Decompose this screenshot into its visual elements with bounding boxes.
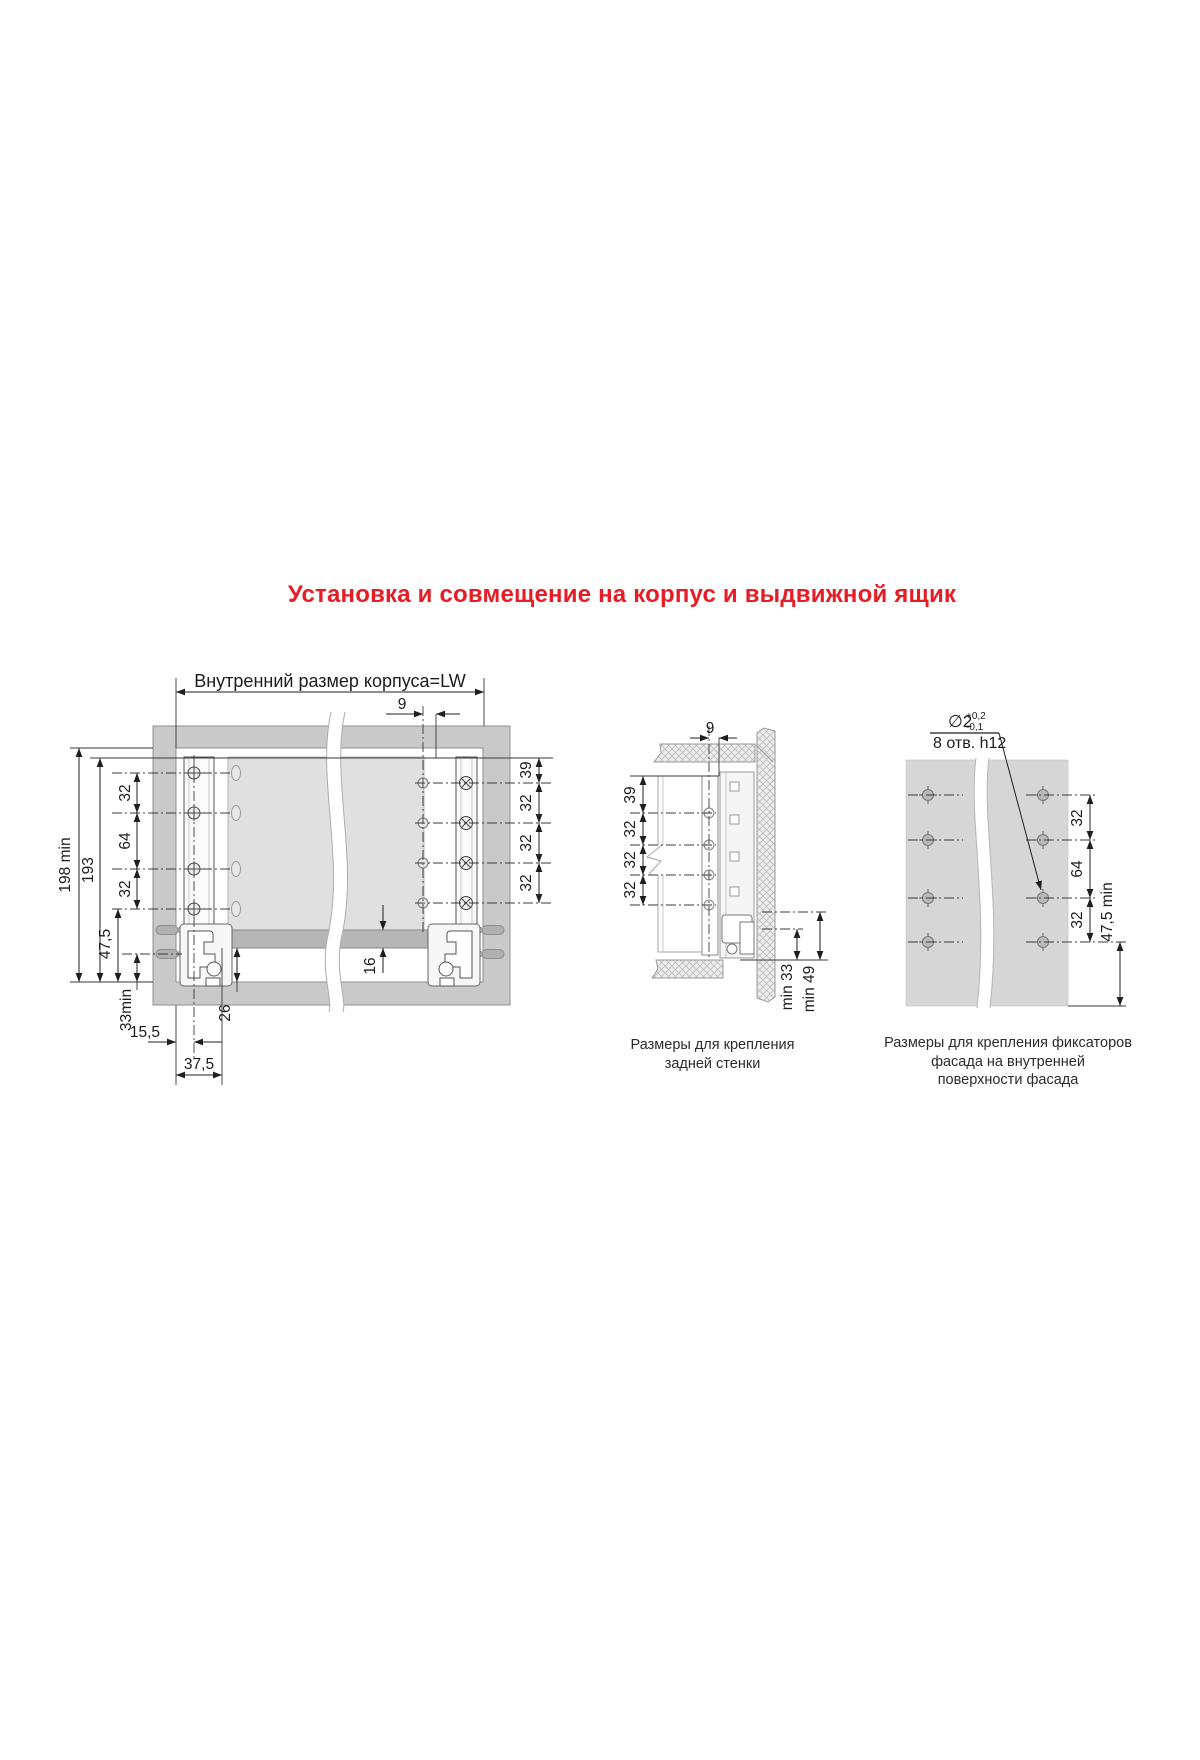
dim-label-32a: 32 — [622, 820, 639, 837]
facade-holes-diagram: ∅2 +0,2 -0,1 8 отв. h12 32 64 32 47,5 mi… — [860, 700, 1150, 1020]
dim-47-5min: 47,5 min — [1068, 882, 1126, 1006]
dim-15-5: 15,5 — [130, 1005, 222, 1085]
dim-min33: min 33 — [779, 929, 797, 1010]
dim-label-15-5: 15,5 — [130, 1024, 160, 1041]
back-bracket — [720, 772, 754, 958]
dim-pitch-chain: 32 64 32 — [1069, 795, 1090, 942]
dim-label-32b: 32 — [622, 851, 639, 868]
cabinet-top-panel — [654, 744, 755, 762]
dim-pitch-chain: 39 32 32 32 — [622, 776, 643, 905]
caption-line: задней стенки — [590, 1055, 835, 1074]
page: Установка и совмещение на корпус и выдви… — [0, 0, 1200, 1760]
cabinet-back-panel — [756, 728, 775, 1002]
dim-label-193: 193 — [80, 857, 97, 883]
dim-label-64: 64 — [1069, 860, 1086, 878]
dim-pitch-chain: 32 64 32 — [117, 773, 137, 909]
dim-label-32c: 32 — [518, 794, 535, 811]
caption-line: поверхности фасада — [858, 1071, 1158, 1090]
dim-label-32b: 32 — [1069, 911, 1086, 928]
dim-label-47-5: 47,5 — [97, 929, 114, 959]
dim-33min: 33min — [118, 954, 137, 1031]
dim-label-16: 16 — [362, 957, 379, 974]
facade-caption: Размеры для крепления фиксаторов фасада … — [858, 1034, 1158, 1090]
cabinet-bottom-panel — [652, 960, 723, 978]
dim-label-37-5: 37,5 — [184, 1056, 214, 1073]
dim-label-39: 39 — [622, 786, 639, 803]
dim-9: 9 — [690, 720, 737, 738]
back-wall-caption: Размеры для крепления задней стенки — [590, 1036, 835, 1073]
dim-label-min49: min 49 — [801, 966, 818, 1013]
dim-label-32b: 32 — [117, 880, 134, 897]
tolerance-plus-label: +0,2 — [966, 711, 986, 722]
dim-label-32c: 32 — [622, 881, 639, 898]
dim-label-32a: 32 — [1069, 809, 1086, 826]
holes-count-label: 8 отв. h12 — [933, 735, 1006, 752]
caption-line: Размеры для крепления фиксаторов — [858, 1034, 1158, 1053]
dim-label-39: 39 — [518, 761, 535, 778]
dim-label-198min: 198 min — [57, 837, 74, 892]
dim-label-47-5min: 47,5 min — [1099, 882, 1116, 941]
drawer-slide-left — [184, 757, 214, 925]
caption-line: Размеры для крепления — [590, 1036, 835, 1055]
left-assembly-diagram: Внутренний размер корпуса=LW 9 198 min 1… — [55, 665, 560, 1095]
dim-label-9: 9 — [706, 720, 715, 737]
dim-label-32a: 32 — [117, 784, 134, 801]
dim-label-lw: Внутренний размер корпуса=LW — [194, 671, 466, 691]
caption-line: фасада на внутренней — [858, 1053, 1158, 1072]
drawer-back-section — [647, 776, 718, 955]
back-wall-diagram: 9 39 32 32 32 min 33 min 49 — [595, 690, 835, 1020]
dim-min49: min 49 — [801, 912, 820, 1012]
tolerance-minus-label: -0,1 — [966, 722, 984, 733]
drawer-lock-right — [428, 924, 480, 986]
drawer-lock-left — [180, 924, 232, 986]
dim-right-chain: 39 32 32 32 — [518, 758, 539, 903]
dim-label-9: 9 — [398, 696, 407, 713]
dim-label-26: 26 — [217, 1004, 234, 1021]
dim-label-32e: 32 — [518, 874, 535, 891]
dim-label-32d: 32 — [518, 834, 535, 851]
page-title: Установка и совмещение на корпус и выдви… — [22, 581, 1200, 609]
dim-label-64: 64 — [117, 832, 134, 850]
dim-label-min33: min 33 — [779, 964, 796, 1011]
